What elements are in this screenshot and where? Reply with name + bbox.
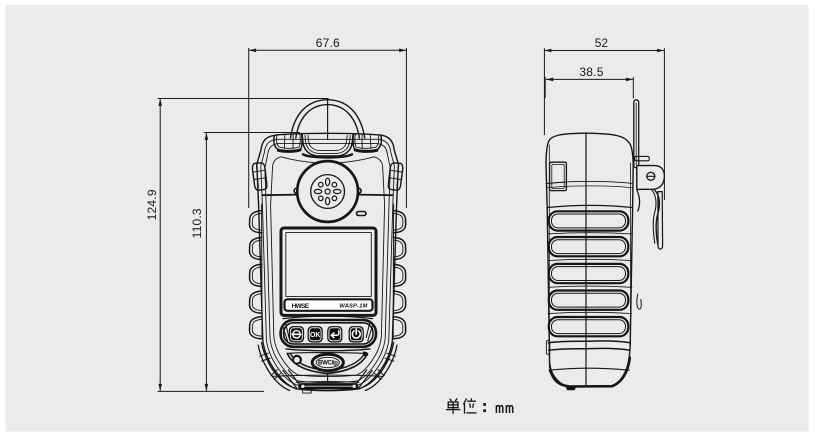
- svg-text:BWClip: BWClip: [318, 361, 338, 367]
- svg-text:52: 52: [595, 36, 609, 50]
- svg-text:WASP-1M: WASP-1M: [339, 304, 367, 310]
- svg-text:124.9: 124.9: [145, 189, 159, 220]
- svg-text:67.6: 67.6: [316, 36, 340, 50]
- svg-text:38.5: 38.5: [579, 65, 603, 79]
- svg-text:110.3: 110.3: [190, 208, 204, 238]
- svg-text:OK: OK: [310, 332, 321, 339]
- svg-text:HWSE: HWSE: [292, 303, 310, 310]
